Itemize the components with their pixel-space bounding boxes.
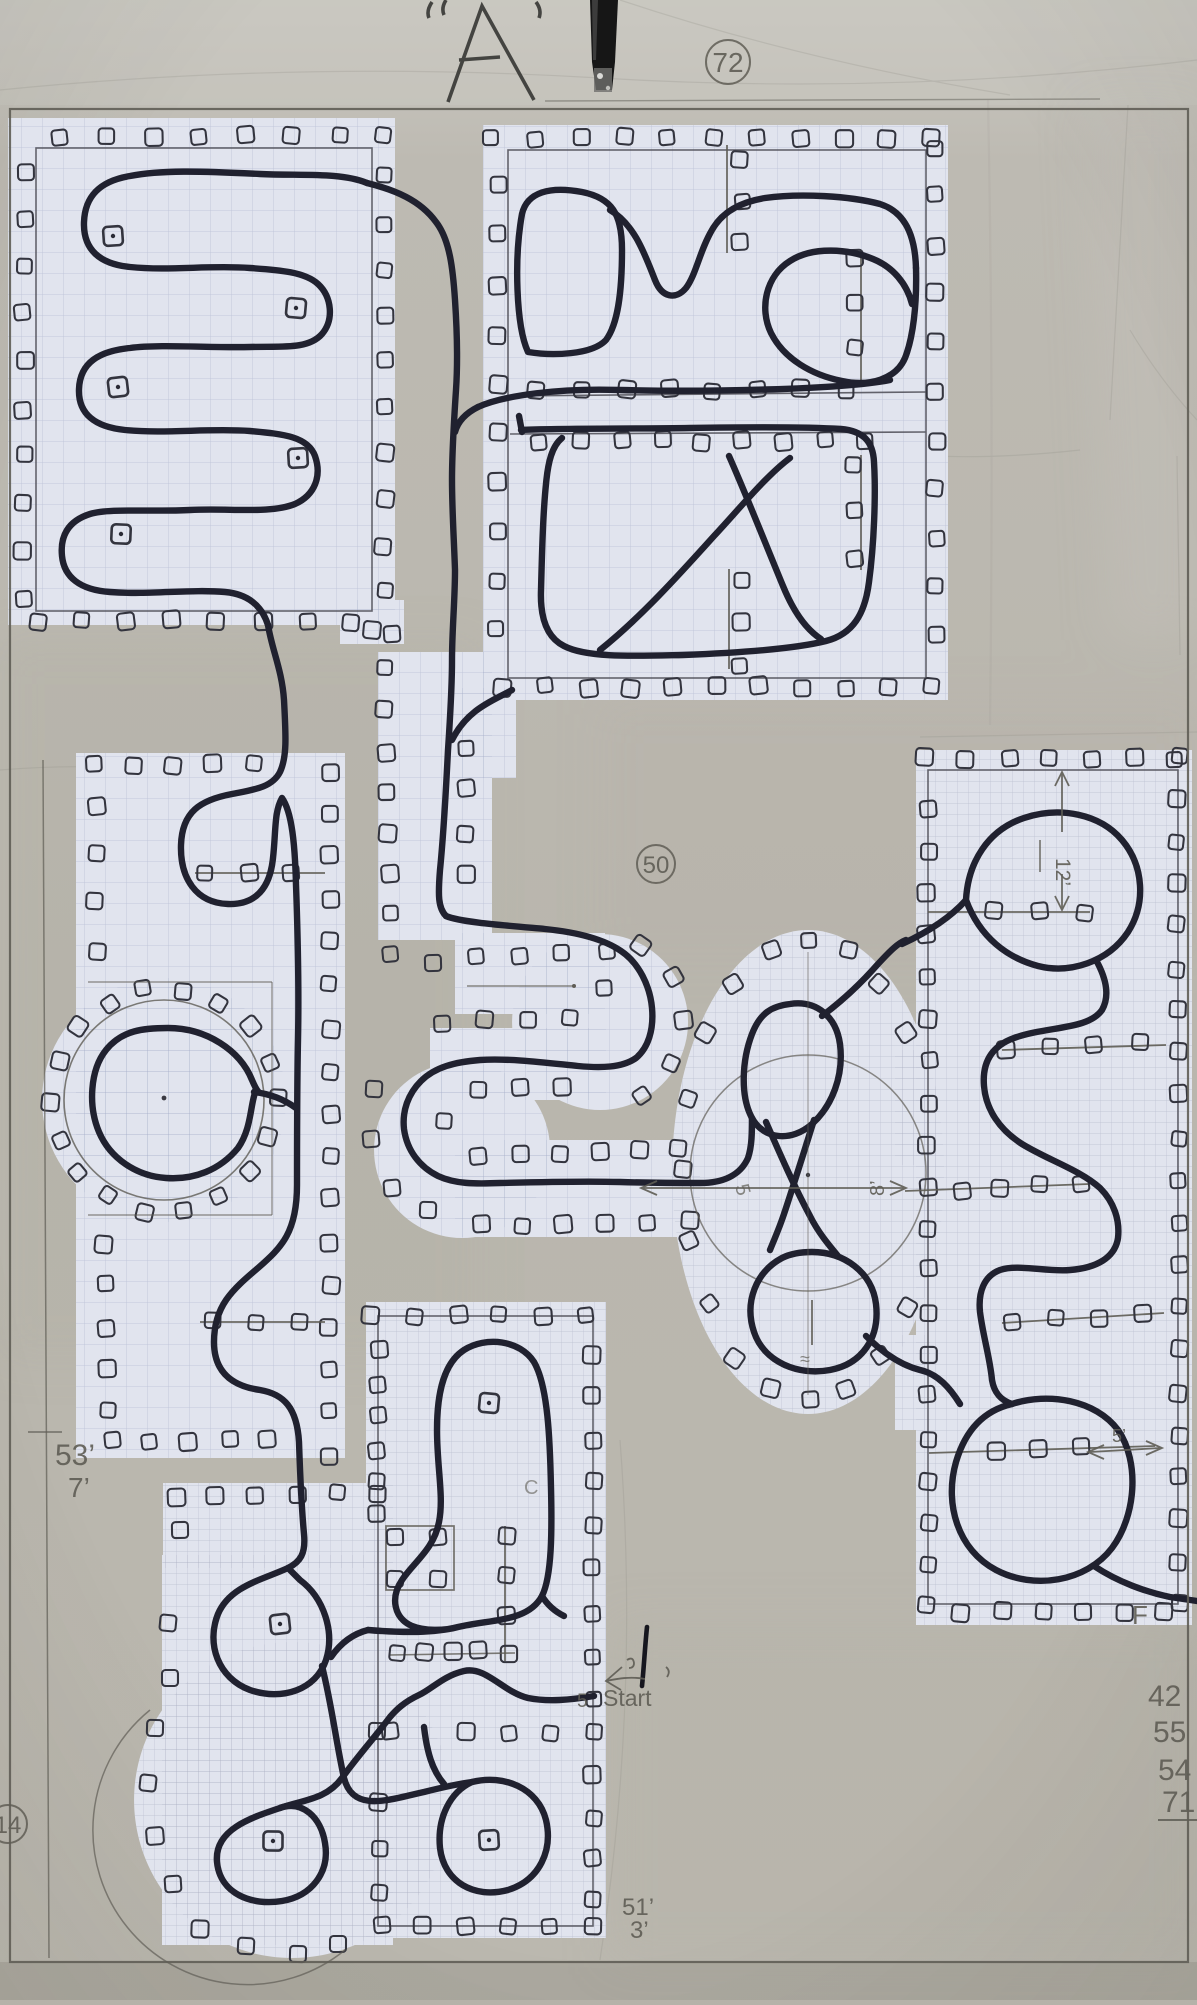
svg-text:3’: 3’ [630, 1917, 649, 1944]
svg-text:50: 50 [643, 852, 670, 879]
svg-text:53’: 53’ [55, 1439, 95, 1472]
svg-text:42: 42 [1148, 1680, 1181, 1713]
svg-text:≈: ≈ [800, 1349, 810, 1369]
svg-text:55: 55 [1153, 1716, 1186, 1749]
svg-text:72: 72 [712, 47, 743, 78]
svg-text:7’: 7’ [68, 1472, 90, 1503]
svg-text:54: 54 [1158, 1754, 1191, 1787]
svg-text:C: C [524, 1477, 538, 1499]
svg-text:14: 14 [0, 1812, 21, 1839]
svg-text:12’: 12’ [1051, 858, 1074, 886]
svg-text:5’: 5’ [1112, 1426, 1126, 1446]
svg-text:8’: 8’ [867, 1180, 889, 1196]
svg-text:5: 5 [577, 1691, 588, 1712]
svg-text:71: 71 [1162, 1786, 1195, 1819]
svg-text:F: F [1132, 1600, 1148, 1630]
svg-text:Start: Start [603, 1685, 652, 1711]
